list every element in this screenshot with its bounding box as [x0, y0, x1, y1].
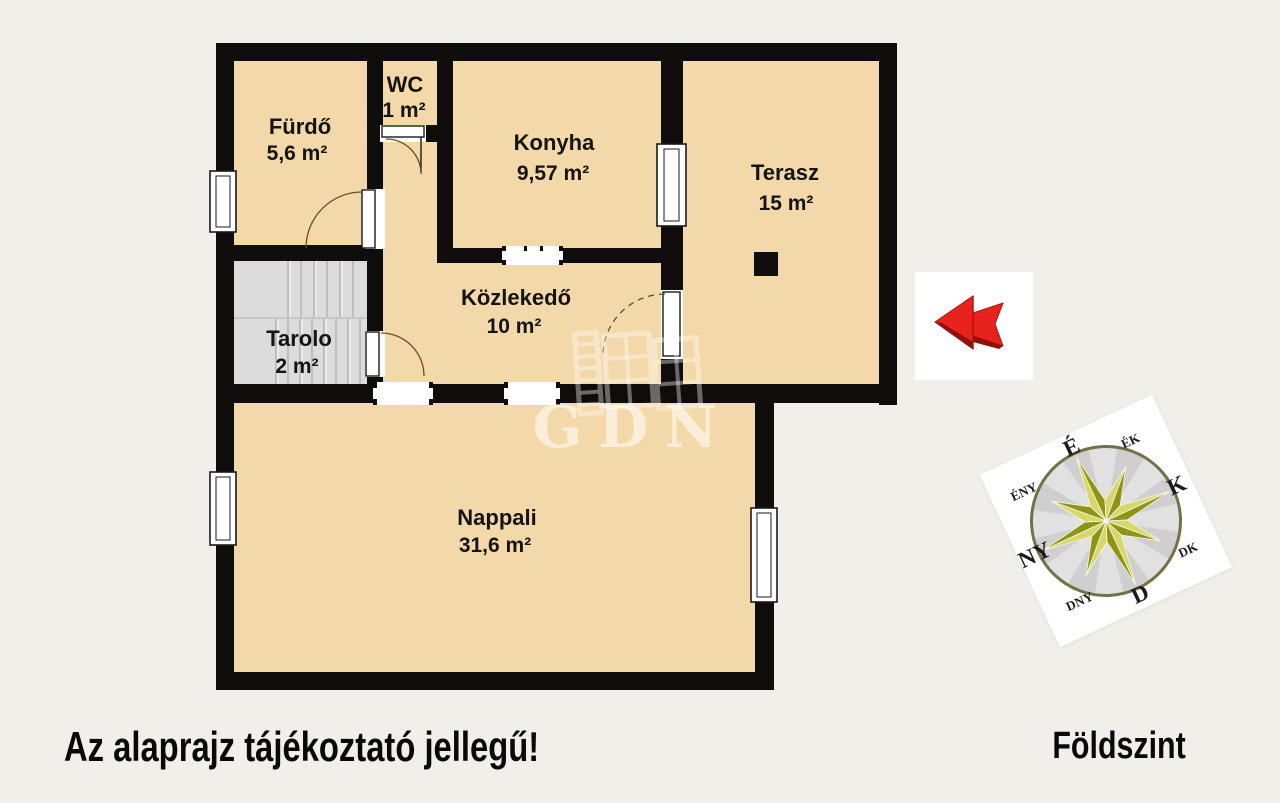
window-furdo-left: [210, 171, 236, 232]
floorplan-page: Fürdő 5,6 m² WC 1 m² Konyha 9,57 m² Tera…: [0, 0, 1280, 803]
floorplan-drawing: Fürdő 5,6 m² WC 1 m² Konyha 9,57 m² Tera…: [0, 0, 1280, 803]
terasz-pillar: [754, 252, 778, 276]
room-area-konyha: 9,57 m²: [517, 162, 589, 185]
room-label-nappali: Nappali: [457, 505, 536, 530]
floor-level-label: Földszint: [1053, 725, 1186, 768]
direction-arrow: [915, 272, 1033, 380]
room-area-wc: 1 m²: [382, 99, 425, 122]
room-area-tarolo: 2 m²: [275, 355, 318, 378]
room-label-kozlekedo: Közlekedő: [461, 285, 571, 310]
room-label-tarolo: Tarolo: [266, 326, 332, 351]
room-area-kozlekedo: 10 m²: [487, 315, 542, 338]
gdn-watermark-text: GDN: [533, 393, 734, 461]
room-label-konyha: Konyha: [514, 130, 595, 155]
compass-star-icon: [1005, 420, 1207, 622]
room-label-furdo: Fürdő: [269, 114, 331, 139]
room-label-terasz: Terasz: [751, 160, 819, 185]
room-area-terasz: 15 m²: [759, 192, 814, 215]
room-area-nappali: 31,6 m²: [459, 534, 531, 557]
window-nappali-left: [210, 472, 236, 545]
room-label-wc: WC: [387, 72, 424, 97]
window-terasz-left: [657, 144, 686, 226]
window-nappali-right: [751, 508, 777, 602]
disclaimer-text: Az alaprajz tájékoztató jellegű!: [64, 723, 539, 771]
room-area-furdo: 5,6 m²: [267, 142, 328, 165]
